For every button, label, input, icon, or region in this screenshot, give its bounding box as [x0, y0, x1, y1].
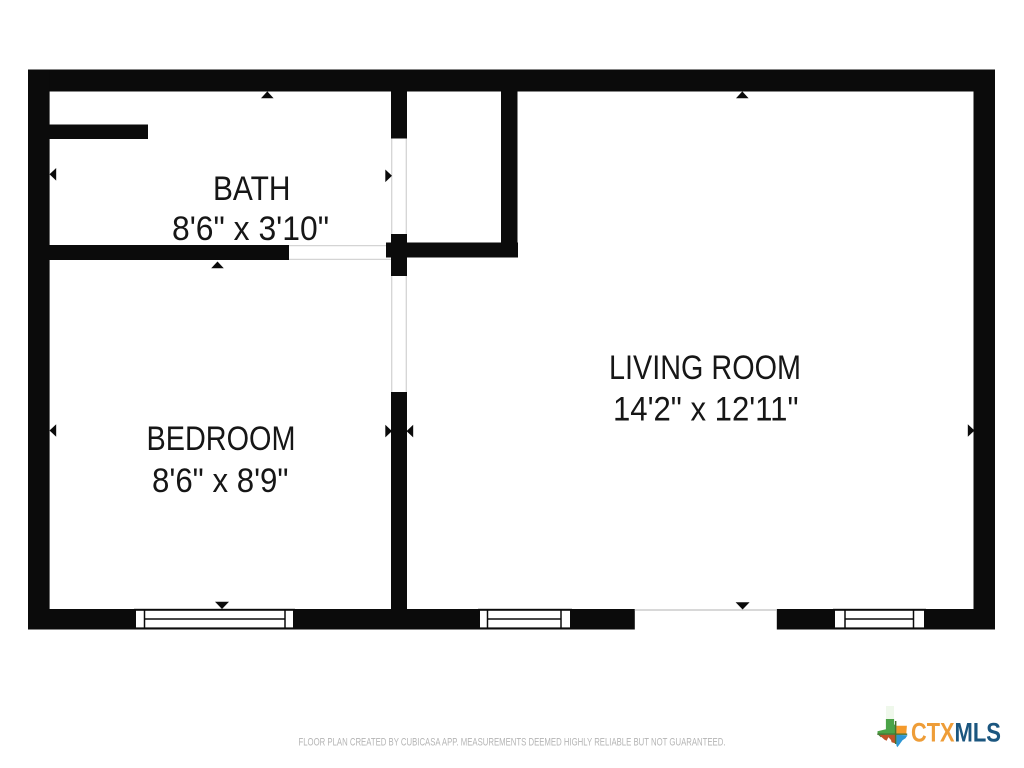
svg-text:BEDROOM: BEDROOM	[147, 420, 296, 458]
svg-text:BATH: BATH	[213, 170, 291, 208]
svg-text:8'6" x 8'9": 8'6" x 8'9"	[152, 462, 289, 500]
svg-text:LIVING ROOM: LIVING ROOM	[609, 349, 801, 387]
svg-text:8'6" x 3'10": 8'6" x 3'10"	[172, 210, 329, 248]
svg-text:14'2" x 12'11": 14'2" x 12'11"	[613, 391, 799, 429]
svg-text:CTX: CTX	[911, 718, 955, 748]
svg-text:MLS: MLS	[955, 718, 1002, 748]
svg-text:FLOOR PLAN CREATED BY CUBICASA: FLOOR PLAN CREATED BY CUBICASA APP. MEAS…	[299, 737, 726, 749]
